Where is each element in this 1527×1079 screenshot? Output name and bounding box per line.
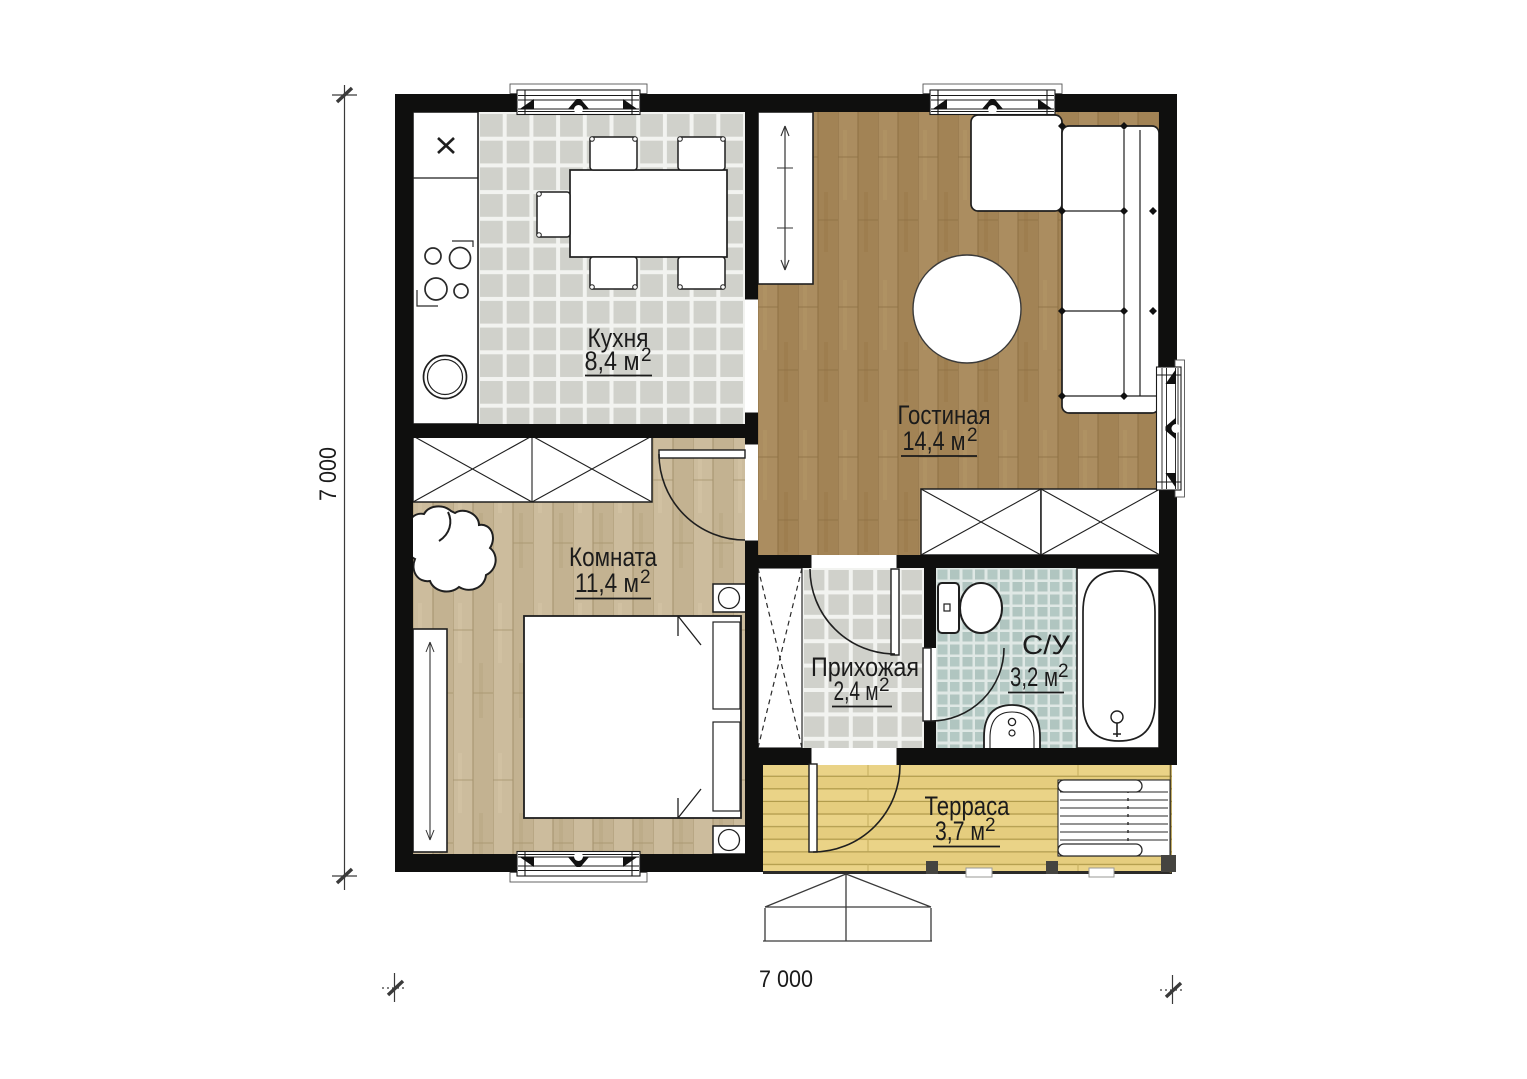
svg-text:11,4 м: 11,4 м [575,568,639,598]
svg-text:С/У: С/У [1022,630,1071,660]
svg-text:3,7 м: 3,7 м [935,816,985,846]
svg-text:2: 2 [879,675,890,696]
svg-text:14,4 м: 14,4 м [903,426,966,456]
svg-text:7 000: 7 000 [759,966,813,993]
svg-text:2: 2 [967,425,978,446]
svg-text:2: 2 [640,567,651,588]
svg-text:2: 2 [1058,661,1069,682]
svg-text:3,2 м: 3,2 м [1010,662,1058,692]
svg-text:2: 2 [641,345,652,366]
svg-text:8,4 м: 8,4 м [585,346,640,376]
svg-text:2,4 м: 2,4 м [834,676,879,706]
svg-text:2: 2 [985,815,996,836]
svg-text:7 000: 7 000 [315,447,342,501]
